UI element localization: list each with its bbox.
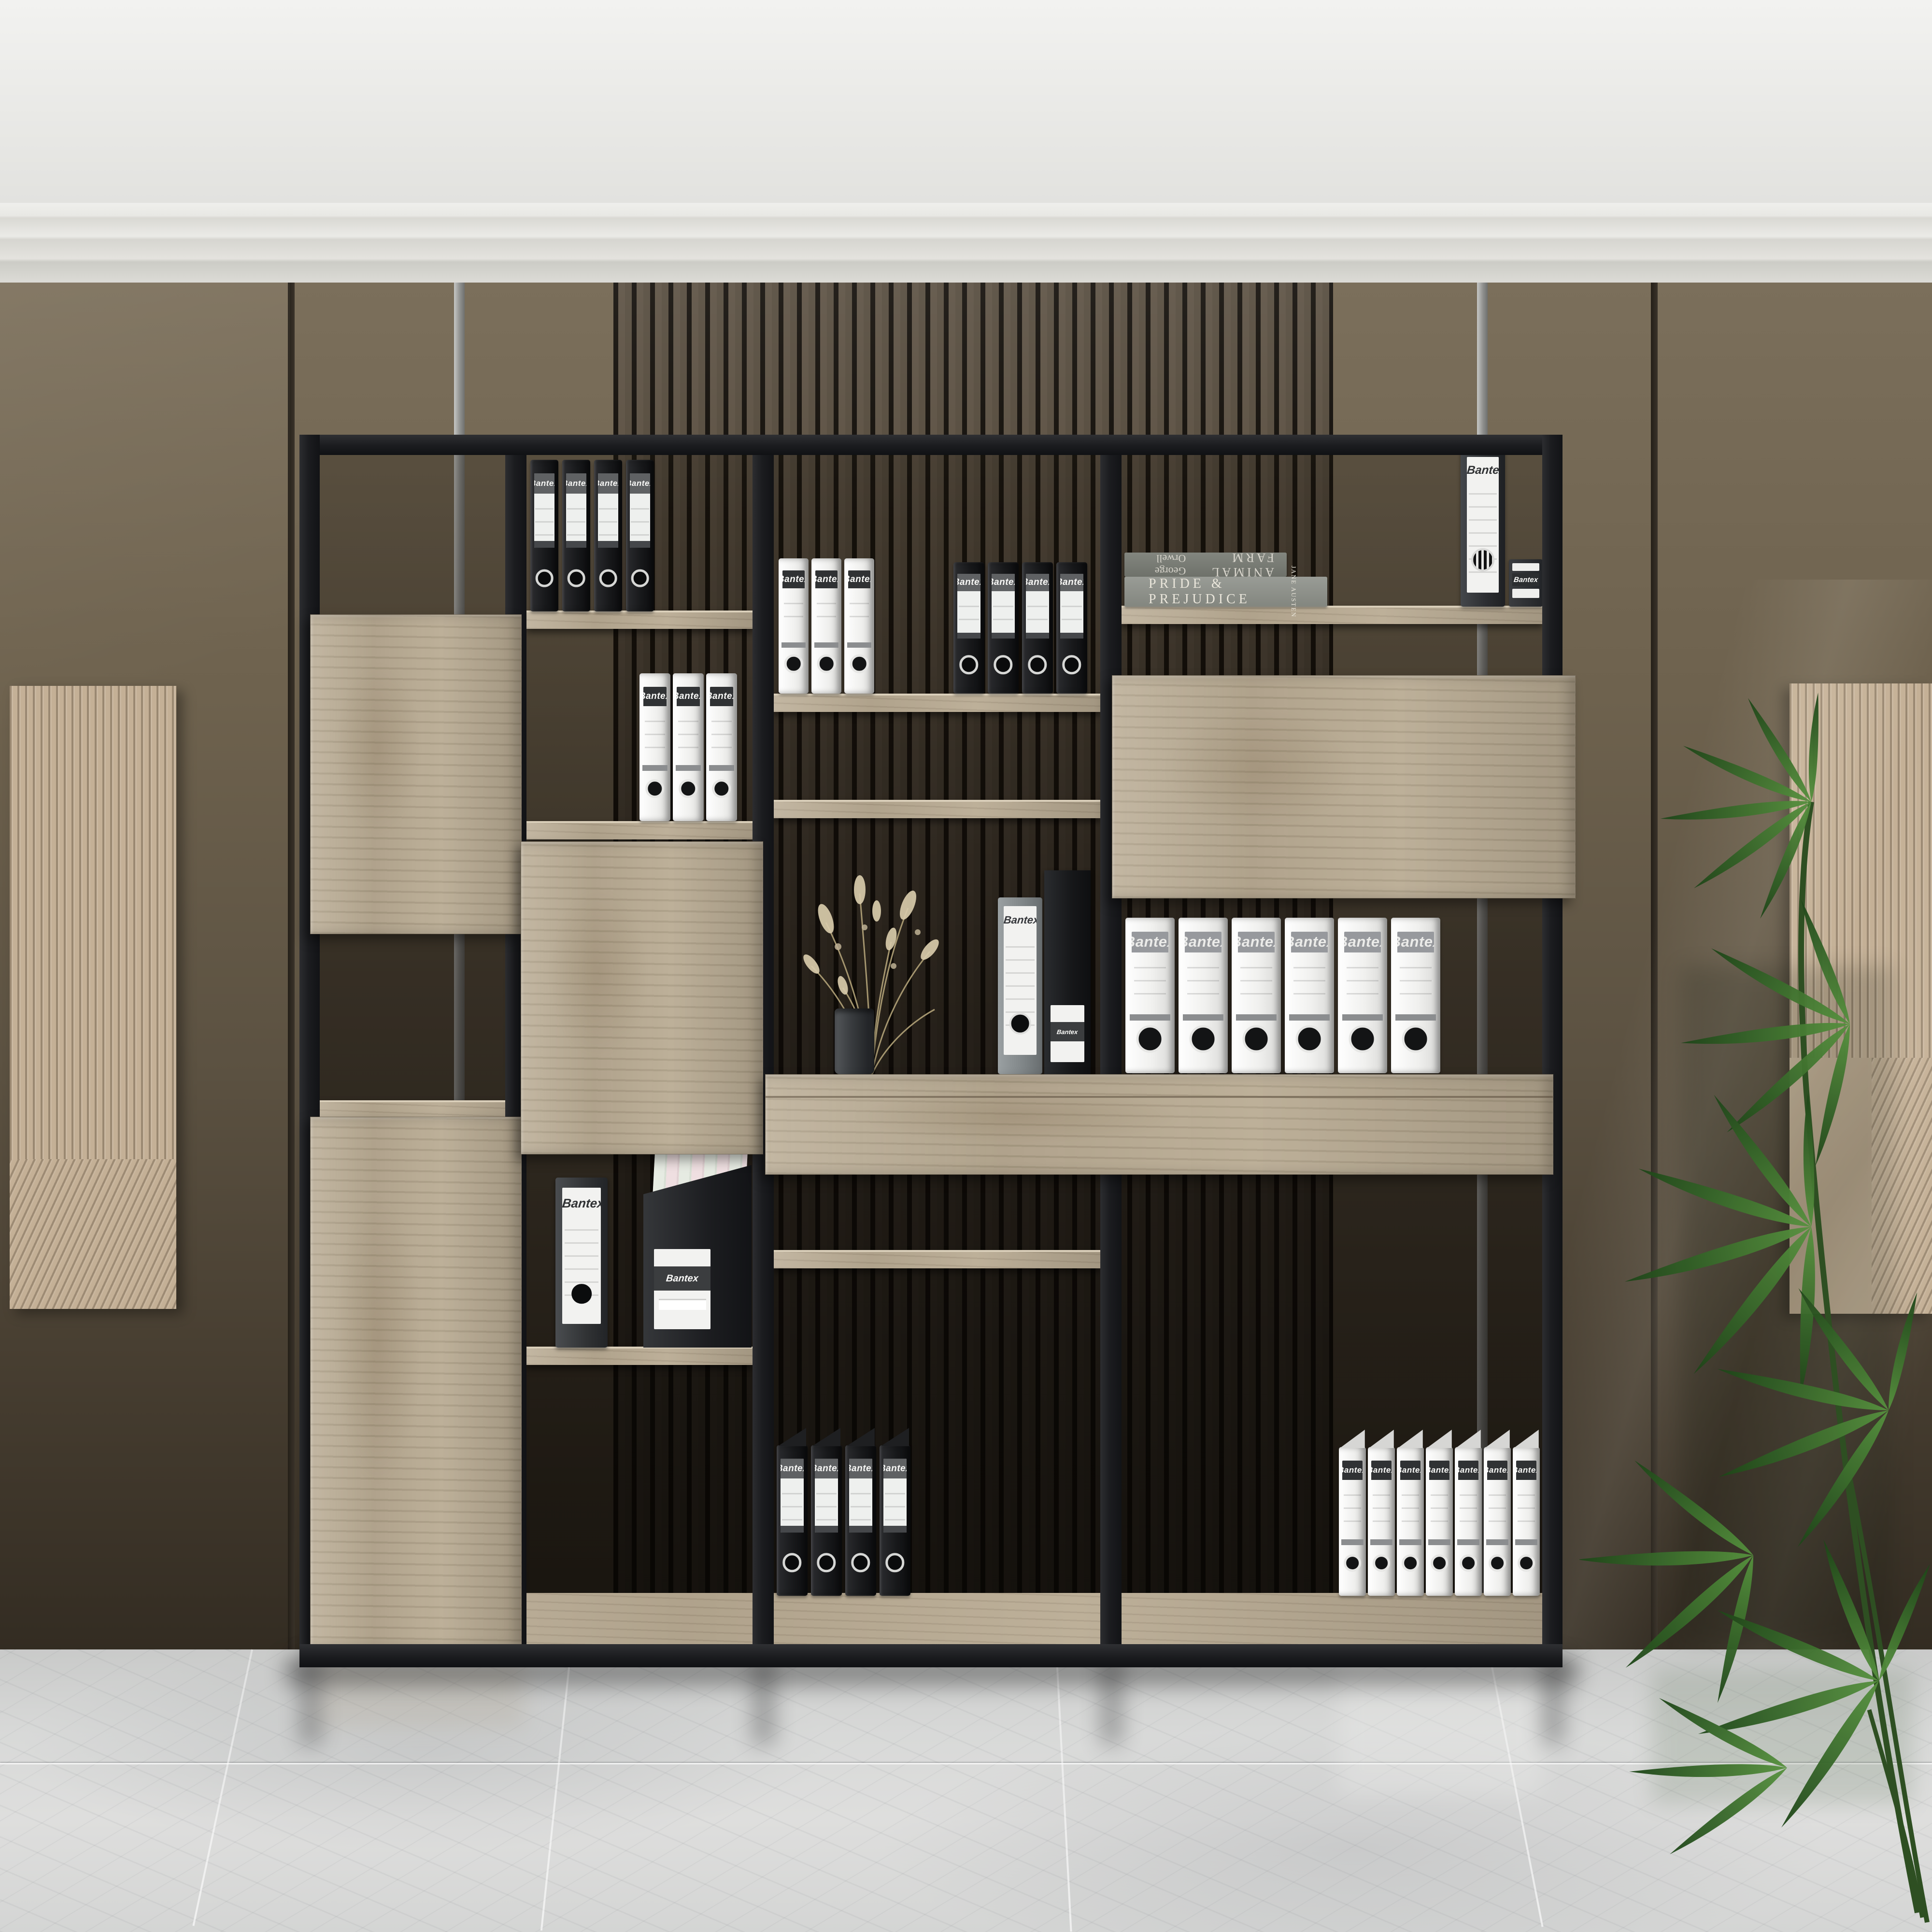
bantex-logo: Bantex bbox=[1400, 1461, 1420, 1480]
label-lines bbox=[1293, 955, 1325, 999]
binder-label: Bantex bbox=[1342, 1461, 1362, 1534]
label-lines bbox=[631, 497, 649, 539]
binder-stripe bbox=[847, 642, 872, 648]
bantex-logo: Bantex bbox=[1026, 574, 1049, 591]
bantex-logo: Bantex bbox=[1344, 932, 1381, 952]
binder-stripe bbox=[709, 765, 735, 771]
binder-label: Bantex bbox=[1344, 932, 1381, 1008]
label-lines bbox=[993, 594, 1013, 631]
binder-stripe bbox=[814, 642, 839, 648]
binder-hole bbox=[817, 1553, 836, 1572]
binder-hole bbox=[959, 655, 978, 674]
binder-stripe bbox=[676, 765, 701, 771]
label-lines bbox=[959, 594, 979, 631]
top-left-black-binders-binder: Bantex bbox=[626, 460, 654, 611]
oak-cabinet-door bbox=[310, 614, 522, 934]
binder-hole bbox=[850, 654, 869, 673]
binder-hole bbox=[1518, 1554, 1535, 1572]
mid-left-white-binders-binder: Bantex bbox=[639, 673, 670, 821]
center-top-white-binders-binder: Bantex bbox=[811, 558, 841, 694]
right-bottom-white-binders-binder: Bantex bbox=[1484, 1447, 1511, 1596]
binder-stripe bbox=[1486, 1539, 1508, 1545]
binder-top-flap bbox=[1369, 1430, 1394, 1448]
binder-hole bbox=[1028, 655, 1047, 674]
bantex-logo: Bantex bbox=[1185, 932, 1222, 952]
office-interior-scene: ANIMAL FARM George Orwell PRIDE & PREJUD… bbox=[0, 0, 1932, 1932]
right-bottom-white-binders-binder: Bantex bbox=[1368, 1447, 1395, 1596]
binder-label: Bantex bbox=[849, 1459, 872, 1533]
frame-bottom-rail bbox=[299, 1644, 1563, 1667]
oak-sliding-door bbox=[1112, 675, 1576, 898]
top-left-black-binders-binder: Bantex bbox=[594, 460, 622, 611]
binder-stripe bbox=[1341, 1539, 1364, 1545]
bantex-logo: Bantex bbox=[1458, 1461, 1478, 1480]
right-bottom-white-binders-binder: Bantex bbox=[1397, 1447, 1424, 1596]
binder-label: Bantex bbox=[848, 570, 870, 637]
binder-hole bbox=[851, 1553, 870, 1572]
label-lines bbox=[885, 1481, 905, 1523]
binder-label: Bantex bbox=[782, 570, 805, 637]
binder-label: Bantex bbox=[643, 687, 666, 759]
bantex-logo: Bantex bbox=[643, 687, 666, 706]
binder-label: Bantex bbox=[1026, 574, 1049, 638]
bantex-logo: Bantex bbox=[848, 570, 870, 588]
binder-hole bbox=[885, 1553, 904, 1572]
bantex-logo: Bantex bbox=[957, 574, 980, 591]
center-top-white-binders-binder: Bantex bbox=[844, 558, 874, 694]
binder-hole bbox=[817, 654, 836, 673]
binder-hole bbox=[1402, 1025, 1430, 1053]
label-lines bbox=[816, 1481, 837, 1523]
binder-stripe bbox=[1395, 1014, 1436, 1021]
binder-label: Bantex bbox=[630, 473, 651, 548]
binder-hole bbox=[1349, 1025, 1377, 1053]
binder-stripe bbox=[1342, 1014, 1383, 1021]
bantex-logo: Bantex bbox=[849, 1459, 872, 1478]
label-lines bbox=[535, 497, 554, 539]
binder-top-flap bbox=[1427, 1430, 1452, 1448]
binder-hole bbox=[679, 779, 697, 798]
center-bottom-black-binders-binder: Bantex bbox=[845, 1445, 876, 1596]
binder-label: Bantex bbox=[1516, 1461, 1536, 1534]
bantex-logo: Bantex bbox=[1291, 932, 1328, 952]
binder-top-flap bbox=[812, 1428, 841, 1446]
label-lines bbox=[1187, 955, 1219, 999]
binder-hole bbox=[782, 1553, 801, 1572]
binder-label: Bantex bbox=[1185, 932, 1222, 1008]
right-bottom-white-binders-binder: Bantex bbox=[1513, 1447, 1540, 1596]
center-top-black-binders-binder: Bantex bbox=[1022, 562, 1053, 694]
frame-right-post bbox=[1542, 435, 1563, 1665]
binder-stripe bbox=[1289, 1014, 1330, 1021]
binder-stripe bbox=[1130, 1014, 1170, 1021]
binder-label: Bantex bbox=[1132, 932, 1168, 1008]
oak-drawer-band bbox=[765, 1074, 1553, 1175]
binder-label: Bantex bbox=[1060, 574, 1083, 638]
binder-label: Bantex bbox=[781, 1459, 803, 1533]
binder-hole bbox=[1402, 1554, 1419, 1572]
binder-hole bbox=[1431, 1554, 1448, 1572]
label-lines bbox=[782, 1481, 802, 1523]
right-bottom-white-binders-binder: Bantex bbox=[1339, 1447, 1366, 1596]
bantex-logo: Bantex bbox=[630, 473, 651, 494]
top-left-black-binders-binder: Bantex bbox=[562, 460, 590, 611]
binder-hole bbox=[1190, 1025, 1217, 1053]
right-bottom-white-binders-binder: Bantex bbox=[1426, 1447, 1453, 1596]
center-top-white-binders-binder: Bantex bbox=[779, 558, 809, 694]
binder-top-flap bbox=[847, 1428, 875, 1446]
label-lines bbox=[1402, 1483, 1420, 1524]
binder-stripe bbox=[1370, 1539, 1392, 1545]
oak-cabinet-door bbox=[310, 1117, 522, 1649]
binder-hole bbox=[1062, 655, 1081, 674]
label-lines bbox=[1344, 1483, 1362, 1524]
label-lines bbox=[1062, 594, 1082, 631]
binder-stripe bbox=[1428, 1539, 1450, 1545]
label-lines bbox=[1027, 594, 1048, 631]
label-lines bbox=[1400, 955, 1432, 999]
binder-stripe bbox=[1515, 1539, 1537, 1545]
bantex-logo: Bantex bbox=[677, 687, 699, 706]
binder-hole bbox=[599, 569, 617, 587]
binder-top-flap bbox=[1340, 1430, 1365, 1448]
bantex-logo: Bantex bbox=[710, 687, 733, 706]
drawer-seam bbox=[766, 1096, 1553, 1098]
binder-hole bbox=[1460, 1554, 1477, 1572]
binder-stripe bbox=[1457, 1539, 1479, 1545]
right-mid-white-binders-binder: Bantex bbox=[1338, 918, 1387, 1073]
label-lines bbox=[1347, 955, 1378, 999]
binder-label: Bantex bbox=[1400, 1461, 1420, 1534]
bantex-logo: Bantex bbox=[1429, 1461, 1449, 1480]
binder-stripe bbox=[1236, 1014, 1277, 1021]
bantex-logo: Bantex bbox=[815, 1459, 838, 1478]
binder-top-flap bbox=[1514, 1430, 1539, 1448]
binder-label: Bantex bbox=[677, 687, 699, 759]
binder-stripe bbox=[1183, 1014, 1223, 1021]
top-left-black-binders-binder: Bantex bbox=[530, 460, 558, 611]
binder-label: Bantex bbox=[992, 574, 1014, 638]
label-lines bbox=[784, 591, 803, 629]
right-mid-white-binders-binder: Bantex bbox=[1391, 918, 1440, 1073]
label-lines bbox=[1518, 1483, 1535, 1524]
label-lines bbox=[1431, 1483, 1449, 1524]
palm-plant bbox=[1579, 657, 1932, 1932]
center-bottom-black-binders-binder: Bantex bbox=[880, 1445, 910, 1596]
binder-hole bbox=[1373, 1554, 1390, 1572]
label-lines bbox=[599, 497, 617, 539]
binder-top-flap bbox=[1456, 1430, 1481, 1448]
binder-hole bbox=[1136, 1025, 1164, 1053]
binder-hole bbox=[536, 569, 554, 587]
bantex-logo: Bantex bbox=[781, 1459, 803, 1478]
center-bottom-black-binders-binder: Bantex bbox=[811, 1445, 842, 1596]
binder-hole bbox=[712, 779, 731, 798]
binder-hole bbox=[568, 569, 585, 587]
bantex-logo: Bantex bbox=[1397, 932, 1434, 952]
binder-label: Bantex bbox=[710, 687, 733, 759]
binder-top-flap bbox=[1398, 1430, 1423, 1448]
bantex-logo: Bantex bbox=[1516, 1461, 1536, 1480]
label-lines bbox=[645, 709, 665, 750]
mid-left-white-binders-binder: Bantex bbox=[673, 673, 704, 821]
binder-hole bbox=[1296, 1025, 1323, 1053]
binder-label: Bantex bbox=[815, 570, 838, 637]
frame-divider bbox=[1100, 455, 1122, 1644]
binder-label: Bantex bbox=[883, 1459, 906, 1533]
label-lines bbox=[1134, 955, 1166, 999]
center-bottom-black-binders-binder: Bantex bbox=[777, 1445, 808, 1596]
binder-label: Bantex bbox=[1429, 1461, 1449, 1534]
center-top-black-binders-binder: Bantex bbox=[953, 562, 984, 694]
binder-top-flap bbox=[778, 1428, 807, 1446]
binder-hole bbox=[994, 655, 1012, 674]
frame-top-rail bbox=[299, 435, 1563, 455]
bantex-logo: Bantex bbox=[1132, 932, 1168, 952]
binder-stripe bbox=[781, 642, 806, 648]
label-lines bbox=[1489, 1483, 1506, 1524]
binder-hole bbox=[645, 779, 664, 798]
label-lines bbox=[850, 591, 869, 629]
bantex-logo: Bantex bbox=[598, 473, 619, 494]
binder-hole bbox=[1243, 1025, 1270, 1053]
binder-label: Bantex bbox=[815, 1459, 838, 1533]
oak-cabinet-door bbox=[521, 841, 763, 1154]
binder-label: Bantex bbox=[1487, 1461, 1507, 1534]
bantex-logo: Bantex bbox=[992, 574, 1014, 591]
binder-label: Bantex bbox=[1397, 932, 1434, 1008]
binder-label: Bantex bbox=[957, 574, 980, 638]
binder-hole bbox=[784, 654, 803, 673]
bantex-logo: Bantex bbox=[1238, 932, 1275, 952]
right-mid-white-binders-binder: Bantex bbox=[1125, 918, 1175, 1073]
center-top-black-binders-binder: Bantex bbox=[1056, 562, 1087, 694]
bantex-logo: Bantex bbox=[534, 473, 555, 494]
label-lines bbox=[1240, 955, 1272, 999]
label-lines bbox=[817, 591, 836, 629]
binder-label: Bantex bbox=[534, 473, 555, 548]
label-lines bbox=[851, 1481, 871, 1523]
right-mid-white-binders-binder: Bantex bbox=[1285, 918, 1334, 1073]
bantex-logo: Bantex bbox=[1342, 1461, 1362, 1480]
binder-hole bbox=[1489, 1554, 1506, 1572]
binder-label: Bantex bbox=[1371, 1461, 1391, 1534]
center-top-black-binders-binder: Bantex bbox=[988, 562, 1019, 694]
bantex-logo: Bantex bbox=[1371, 1461, 1391, 1480]
binder-stripe bbox=[1399, 1539, 1421, 1545]
binder-label: Bantex bbox=[1291, 932, 1328, 1008]
bantex-logo: Bantex bbox=[883, 1459, 906, 1478]
binder-hole bbox=[631, 569, 649, 587]
label-lines bbox=[567, 497, 585, 539]
right-mid-white-binders-binder: Bantex bbox=[1179, 918, 1228, 1073]
label-lines bbox=[1460, 1483, 1477, 1524]
label-lines bbox=[711, 709, 732, 750]
binder-label: Bantex bbox=[598, 473, 619, 548]
binder-label: Bantex bbox=[1458, 1461, 1478, 1534]
binder-label: Bantex bbox=[566, 473, 587, 548]
binder-hole bbox=[1344, 1554, 1361, 1572]
bantex-logo: Bantex bbox=[1487, 1461, 1507, 1480]
binder-stripe bbox=[642, 765, 668, 771]
right-bottom-white-binders-binder: Bantex bbox=[1455, 1447, 1482, 1596]
binder-top-flap bbox=[881, 1428, 909, 1446]
binder-top-flap bbox=[1485, 1430, 1510, 1448]
bantex-logo: Bantex bbox=[566, 473, 587, 494]
right-mid-white-binders-binder: Bantex bbox=[1232, 918, 1281, 1073]
bantex-logo: Bantex bbox=[1060, 574, 1083, 591]
bantex-logo: Bantex bbox=[815, 570, 838, 588]
mid-left-white-binders-binder: Bantex bbox=[706, 673, 737, 821]
bantex-logo: Bantex bbox=[782, 570, 805, 588]
label-lines bbox=[1373, 1483, 1391, 1524]
label-lines bbox=[678, 709, 698, 750]
binder-label: Bantex bbox=[1238, 932, 1275, 1008]
